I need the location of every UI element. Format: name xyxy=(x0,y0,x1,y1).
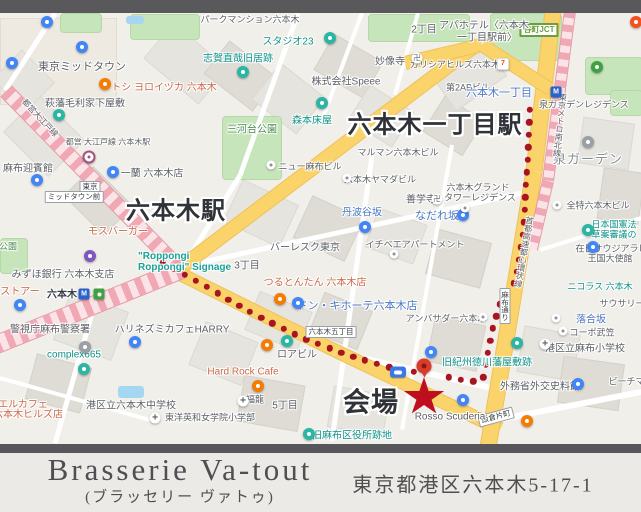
map-label: サウサリー xyxy=(599,297,641,310)
transit-stop-icon[interactable] xyxy=(390,367,406,378)
map-label: 六本木ヒルズ店 xyxy=(0,406,63,421)
map-label: Hard Rock Cafe xyxy=(207,367,278,378)
map-label: 警視庁麻布警察署 xyxy=(10,321,90,336)
map-label: 落合坂 xyxy=(576,311,606,326)
bus-stop-label[interactable]: 麻布通り xyxy=(500,288,511,324)
map-label: ニコラス 六本木 xyxy=(567,280,632,293)
dot-pin[interactable] xyxy=(553,201,562,210)
map-label: 全特六本木ビル xyxy=(566,199,629,212)
dot-pin[interactable] xyxy=(559,327,568,336)
bus-stop-label[interactable]: 六本木五丁目 xyxy=(306,326,357,338)
teal-pin[interactable] xyxy=(237,66,249,78)
map-label: 港区立六本木中学校 xyxy=(86,397,176,412)
entrance-pin[interactable] xyxy=(94,289,105,300)
map-label: Rosso Scuderia xyxy=(415,412,486,423)
map-label: 2丁目 xyxy=(411,21,437,36)
major-road xyxy=(480,170,543,444)
map-label: 萩藩毛利家下屋敷 xyxy=(45,95,125,110)
teal-pin[interactable] xyxy=(316,97,328,109)
venue-big-label[interactable]: 会場 xyxy=(343,381,399,420)
top-window-bar xyxy=(0,0,641,13)
map-label: 東京ミッドタウン xyxy=(38,58,126,74)
map-label: 六本木ヤマダビル xyxy=(344,173,416,186)
school-pin[interactable]: ✚ xyxy=(238,396,249,407)
metro-pin[interactable]: M xyxy=(551,87,562,98)
map-label: ストアー xyxy=(0,283,39,298)
map-label: 公園 xyxy=(0,240,17,253)
seven-pin[interactable]: 7 xyxy=(497,58,509,70)
map-label: パークマンション六本木 xyxy=(200,13,299,26)
map-label: 福龍 xyxy=(246,393,264,406)
water-area xyxy=(126,16,144,24)
metro-pin[interactable]: M xyxy=(79,289,90,300)
oedo-pin[interactable] xyxy=(83,151,96,164)
blue-pin[interactable] xyxy=(129,336,141,348)
teal-pin[interactable] xyxy=(303,428,315,440)
map-label: 森本床屋 xyxy=(292,112,332,127)
map-label: ロアビル xyxy=(277,346,317,361)
map-label: 一丁目駅前〉 xyxy=(457,29,517,44)
venue-address: 東京都港区六本木5-17-1 xyxy=(352,469,593,498)
dot-pin[interactable] xyxy=(343,174,352,183)
blue-pin[interactable] xyxy=(107,166,119,178)
blue-pin[interactable] xyxy=(6,57,18,69)
map-label: 東洋英和女学院小学部 xyxy=(165,411,255,424)
map-label: ハリネズミカフェHARRY xyxy=(115,321,230,336)
map-label: なだれ坂 xyxy=(415,207,459,223)
route-dot xyxy=(487,337,493,343)
dot-pin[interactable] xyxy=(479,313,488,322)
teal-pin[interactable] xyxy=(281,335,293,347)
manji-pin[interactable]: 卍 xyxy=(412,53,423,64)
map-label: トシ ヨロイヅカ 六本木 xyxy=(111,79,217,94)
blue-pin[interactable] xyxy=(31,174,43,186)
teal-pin[interactable] xyxy=(582,224,594,236)
blue-pin[interactable] xyxy=(457,394,469,406)
dot-pin[interactable] xyxy=(461,204,470,213)
venue-name-kana: (ブラッセリー ヴァトゥ) xyxy=(85,486,275,507)
map-label: 3丁目 xyxy=(234,257,260,272)
map-label: バーレスク東京 xyxy=(270,239,340,254)
blue-pin[interactable] xyxy=(572,378,584,390)
dot-pin[interactable] xyxy=(552,314,561,323)
map-label: 都営 大江戸線 六本木駅 xyxy=(66,137,150,148)
map-label: 王国大使館 xyxy=(587,252,632,265)
map-label: 丹波谷坂 xyxy=(342,204,382,219)
purple-pin[interactable] xyxy=(84,250,96,262)
map-canvas[interactable]: 谷町JCT東京ミッドタウン前六本木五丁目飯倉片町麻布通りパークマンション六本木東… xyxy=(0,0,641,444)
map-label: ビーチマン xyxy=(608,375,641,388)
map-label: つるとんたん 六本木店 xyxy=(264,274,367,289)
teal-pin[interactable] xyxy=(511,337,523,349)
map-label: 5丁目 xyxy=(272,397,298,412)
map-label: タワーレジデンス xyxy=(444,191,516,204)
park-area xyxy=(60,13,102,33)
paw-pin[interactable] xyxy=(14,299,26,311)
blue-pin[interactable] xyxy=(292,297,304,309)
map-label: 妙像寺 xyxy=(375,53,405,68)
map-label: 麻布迎賓館 xyxy=(3,160,53,175)
route-dot xyxy=(490,325,496,331)
orange-pin[interactable] xyxy=(99,78,111,90)
venue-pin-marker[interactable] xyxy=(417,359,432,374)
map-label: 三河台公園 xyxy=(227,121,277,136)
school-pin[interactable]: ✚ xyxy=(150,413,161,424)
map-label: 一蘭 六本木店 xyxy=(121,165,184,180)
manji-pin[interactable]: 卍 xyxy=(432,194,443,205)
gray-pin[interactable] xyxy=(79,341,91,353)
map-label: ドン・キホーテ六本木店 xyxy=(297,297,418,313)
blue-pin[interactable] xyxy=(587,241,599,253)
roppongi-signage-label: "RoppongiRoppongi" Signage xyxy=(138,251,231,273)
school-pin[interactable]: ✚ xyxy=(540,339,551,350)
building-block xyxy=(597,167,641,224)
venue-info-panel: Brasserie Va-tout (ブラッセリー ヴァトゥ) 東京都港区六本木… xyxy=(0,453,641,512)
map-label: complex665 xyxy=(47,350,101,361)
route-dot xyxy=(480,374,486,380)
orange-pin[interactable] xyxy=(261,339,273,351)
ocircle-pin[interactable] xyxy=(630,16,641,28)
map-label: スタジオ23 xyxy=(262,33,313,48)
station-big-label[interactable]: 六本木一丁目駅 xyxy=(348,105,523,140)
orange-pin[interactable] xyxy=(252,380,264,392)
map-label: 旧紀州徳川藩屋敷跡 xyxy=(442,354,532,369)
orange-pin[interactable] xyxy=(274,293,286,305)
map-label: 港区立麻布小学校 xyxy=(545,340,625,355)
teal-pin[interactable] xyxy=(53,109,65,121)
venue-name: Brasserie Va-tout xyxy=(48,452,313,488)
map-label: 志賀直哉旧居跡 xyxy=(203,50,273,65)
blue-pin[interactable] xyxy=(359,221,371,233)
map-label: 泉ガーデンレジデンス xyxy=(539,98,629,111)
blue-pin[interactable] xyxy=(425,346,437,358)
map-label: 外務省外交史料館 xyxy=(500,378,580,393)
map-label: マルマン六本木ビル xyxy=(357,146,438,159)
gray-pin[interactable] xyxy=(582,136,594,148)
map-label: みずほ銀行 六本木支店 xyxy=(12,266,115,281)
map-label: 六本木 xyxy=(47,286,77,301)
blue-pin[interactable] xyxy=(41,16,53,28)
route-dot xyxy=(410,369,416,375)
bus-stop-label[interactable]: ミッドタウン前 xyxy=(45,191,104,203)
map-label: ガリシアヒルズ六本木 xyxy=(410,58,500,71)
dot-pin[interactable] xyxy=(267,161,276,170)
map-label: アンバサダー六本木 xyxy=(406,312,487,325)
map-label: ニュー麻布ビル xyxy=(278,160,341,173)
map-label: 草案審議の xyxy=(591,228,636,241)
map-label: 旧麻布区役所跡地 xyxy=(312,427,392,442)
dot-pin[interactable] xyxy=(390,250,399,259)
orange-pin[interactable] xyxy=(521,415,533,427)
map-label: 六本木一丁目 xyxy=(466,84,532,100)
map-label: 泉ガーデン xyxy=(553,149,623,168)
blue-pin[interactable] xyxy=(76,41,88,53)
teal-pin[interactable] xyxy=(78,363,90,375)
map-label: イチベエアパートメント xyxy=(366,238,465,251)
greenstation-pin[interactable] xyxy=(591,61,603,73)
map-label: 株式会社Speee xyxy=(312,73,381,88)
station-big-label[interactable]: 六本木駅 xyxy=(126,191,226,226)
cam-pin[interactable] xyxy=(324,32,336,44)
map-label: コーポ武笠 xyxy=(569,326,614,339)
